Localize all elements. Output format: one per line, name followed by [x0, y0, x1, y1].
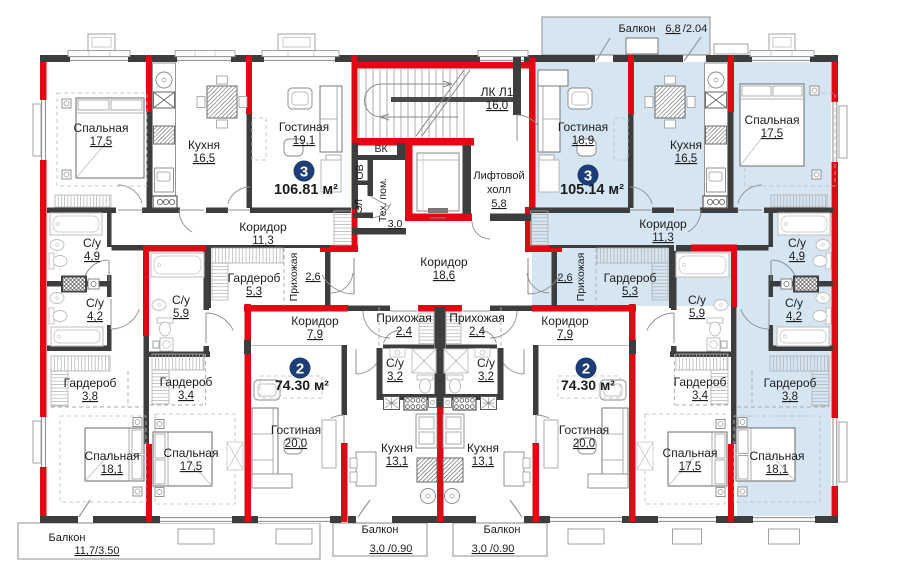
- svg-text:Тех. пом.: Тех. пом.: [377, 178, 389, 222]
- svg-text:5,9: 5,9: [689, 308, 705, 320]
- svg-text:3,2: 3,2: [387, 371, 403, 383]
- svg-text:18,1: 18,1: [101, 464, 123, 476]
- svg-text:3,0 /0.90: 3,0 /0.90: [370, 543, 413, 555]
- svg-text:2,4: 2,4: [396, 326, 413, 338]
- svg-text:Гардероб: Гардероб: [604, 271, 657, 285]
- svg-text:106.81 м²: 106.81 м²: [274, 182, 338, 198]
- svg-text:Гостиная: Гостиная: [279, 120, 329, 134]
- svg-text:Балкон: Балкон: [619, 23, 656, 35]
- svg-text:Кухня: Кухня: [188, 138, 220, 152]
- svg-text:Гардероб: Гардероб: [674, 375, 727, 389]
- svg-text:18,6: 18,6: [433, 270, 455, 282]
- svg-text:11,7/3.50: 11,7/3.50: [74, 545, 119, 557]
- svg-text:Коридор: Коридор: [541, 314, 589, 328]
- svg-text:Прихожая: Прихожая: [449, 311, 505, 325]
- svg-text:С/у: С/у: [86, 296, 104, 310]
- svg-text:Кухня: Кухня: [670, 138, 702, 152]
- svg-text:4,2: 4,2: [87, 311, 103, 323]
- svg-text:3,0 /0.90: 3,0 /0.90: [472, 543, 515, 555]
- svg-text:17,5: 17,5: [679, 461, 701, 473]
- svg-text:Гардероб: Гардероб: [160, 375, 213, 389]
- svg-text:17,5: 17,5: [180, 461, 202, 473]
- svg-text:Коридор: Коридор: [291, 314, 339, 328]
- svg-text:3,2: 3,2: [478, 371, 494, 383]
- svg-text:Гардероб: Гардероб: [764, 376, 817, 390]
- svg-text:Прихожая: Прихожая: [288, 253, 300, 302]
- svg-text:С/у: С/у: [688, 293, 706, 307]
- svg-text:Спальная: Спальная: [85, 449, 140, 463]
- svg-text:Спальная: Спальная: [745, 113, 800, 127]
- svg-text:2: 2: [296, 361, 304, 378]
- svg-text:Спальная: Спальная: [74, 121, 129, 135]
- svg-text:Коридор: Коридор: [420, 255, 468, 269]
- svg-text:11,3: 11,3: [252, 235, 274, 247]
- svg-text:2: 2: [582, 361, 590, 378]
- svg-text:Коридор: Коридор: [639, 217, 687, 231]
- svg-text:74.30 м²: 74.30 м²: [275, 377, 329, 393]
- svg-text:С/у: С/у: [83, 236, 101, 250]
- svg-text:С/у: С/у: [386, 356, 404, 370]
- svg-text:3: 3: [300, 164, 308, 181]
- svg-text:2,6: 2,6: [305, 271, 320, 283]
- svg-text:Гардероб: Гардероб: [228, 271, 281, 285]
- svg-text:Гостиная: Гостиная: [271, 423, 321, 437]
- svg-text:Спальная: Спальная: [164, 446, 219, 460]
- svg-text:17,5: 17,5: [761, 128, 783, 140]
- svg-text:17,5: 17,5: [90, 136, 112, 148]
- svg-text:Прихожая: Прихожая: [376, 311, 432, 325]
- svg-text:16,5: 16,5: [193, 153, 215, 165]
- svg-text:Кухня: Кухня: [467, 441, 499, 455]
- svg-text:Гостиная: Гостиная: [559, 423, 609, 437]
- svg-text:С/у: С/у: [785, 296, 803, 310]
- svg-text:С/у: С/у: [172, 293, 190, 307]
- svg-text:Прихожая: Прихожая: [575, 253, 587, 302]
- svg-text:Балкон: Балкон: [484, 524, 521, 536]
- svg-text:18,9: 18,9: [572, 135, 594, 147]
- svg-text:Балкон: Балкон: [49, 532, 86, 544]
- svg-text:3,4: 3,4: [178, 390, 195, 402]
- svg-text:5,3: 5,3: [622, 286, 638, 298]
- svg-text:19,1: 19,1: [293, 135, 315, 147]
- svg-text:ВК: ВК: [374, 143, 388, 155]
- svg-text:Кухня: Кухня: [381, 441, 413, 455]
- svg-text:7,9: 7,9: [307, 329, 323, 341]
- svg-text:С/у: С/у: [788, 236, 806, 250]
- svg-text:2,6: 2,6: [557, 272, 572, 284]
- svg-text:16,0: 16,0: [486, 100, 508, 112]
- svg-text:16,5: 16,5: [675, 153, 697, 165]
- svg-text:2,4: 2,4: [469, 326, 486, 338]
- svg-text:ЛК Л1: ЛК Л1: [481, 85, 514, 99]
- svg-text:Балкон: Балкон: [362, 524, 399, 536]
- svg-text:13,1: 13,1: [472, 456, 494, 468]
- svg-text:ЭЛ: ЭЛ: [353, 199, 365, 213]
- svg-text:20,0: 20,0: [285, 438, 307, 450]
- svg-text:Гостиная: Гостиная: [558, 120, 608, 134]
- svg-text:5,8: 5,8: [491, 198, 506, 210]
- svg-text:Коридор: Коридор: [239, 220, 287, 234]
- svg-text:11,3: 11,3: [652, 232, 674, 244]
- svg-text:/2.04: /2.04: [683, 23, 707, 35]
- svg-text:5,3: 5,3: [246, 286, 262, 298]
- svg-text:Спальная: Спальная: [663, 446, 718, 460]
- svg-text:6,8: 6,8: [665, 23, 680, 35]
- svg-text:74.30 м²: 74.30 м²: [561, 377, 615, 393]
- svg-text:4,2: 4,2: [786, 311, 802, 323]
- svg-text:18,1: 18,1: [766, 464, 788, 476]
- svg-text:3,8: 3,8: [782, 391, 798, 403]
- svg-text:20,0: 20,0: [573, 438, 595, 450]
- svg-text:4,9: 4,9: [84, 251, 100, 263]
- svg-text:3,0: 3,0: [388, 218, 403, 230]
- svg-text:Спальная: Спальная: [750, 449, 805, 463]
- svg-text:Лифтовой: Лифтовой: [473, 170, 524, 182]
- svg-text:13,1: 13,1: [386, 456, 408, 468]
- svg-text:105.14 м²: 105.14 м²: [560, 182, 624, 198]
- svg-text:3,4: 3,4: [692, 390, 709, 402]
- svg-text:холл: холл: [487, 184, 511, 196]
- svg-text:7,9: 7,9: [557, 329, 573, 341]
- svg-text:5,9: 5,9: [173, 308, 189, 320]
- svg-text:4,9: 4,9: [789, 251, 805, 263]
- svg-text:3,8: 3,8: [82, 391, 98, 403]
- svg-text:Гардероб: Гардероб: [64, 376, 117, 390]
- svg-text:ОВ: ОВ: [354, 164, 366, 179]
- svg-text:С/у: С/у: [477, 356, 495, 370]
